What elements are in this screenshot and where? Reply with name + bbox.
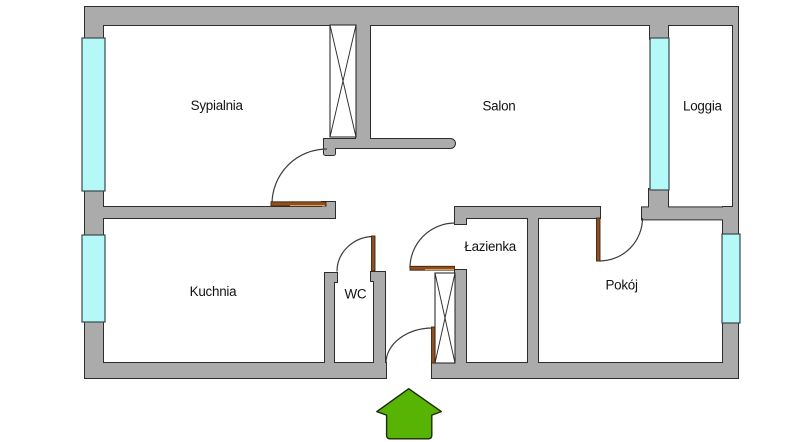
svg-text:Salon: Salon (483, 99, 516, 114)
svg-text:WC: WC (344, 287, 366, 302)
svg-text:Pokój: Pokój (605, 278, 638, 293)
svg-text:Sypialnia: Sypialnia (191, 98, 244, 113)
svg-text:Łazienka: Łazienka (464, 239, 516, 254)
svg-text:Kuchnia: Kuchnia (190, 284, 237, 299)
svg-text:Loggia: Loggia (683, 99, 723, 114)
